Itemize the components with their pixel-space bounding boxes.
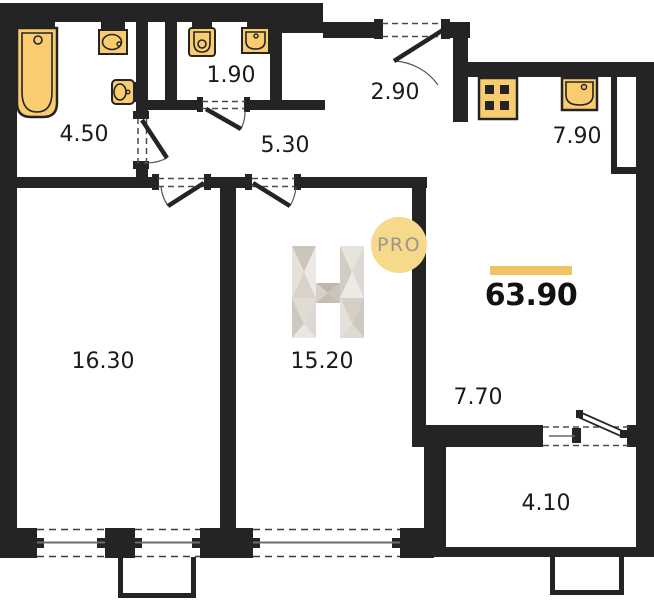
bathroom-sink-icon <box>99 22 127 54</box>
room-area-label-wc: 1.90 <box>207 65 256 87</box>
total-area-label: 63.90 <box>485 281 577 311</box>
pro-badge: PRO <box>371 217 427 273</box>
room-area-label-bedroom: 15.20 <box>291 351 354 373</box>
pro-badge-label: PRO <box>377 234 421 256</box>
room-area-label-kitchen: 7.90 <box>553 126 602 148</box>
wc-toilet-icon <box>189 19 215 56</box>
room-area-label-corridor: 7.70 <box>454 387 503 409</box>
watermark-logo <box>292 246 364 338</box>
floorplan: PRO 4.50 1.90 5.30 2.90 7.90 16.30 15.20… <box>0 0 654 600</box>
kitchen-sink-icon <box>562 78 597 110</box>
room-area-label-entry: 2.90 <box>371 82 420 104</box>
room-area-label-bathroom: 4.50 <box>60 124 109 146</box>
stove-icon <box>479 78 517 119</box>
bathroom-toilet-icon <box>112 80 143 104</box>
room-area-label-balcony: 4.10 <box>522 493 571 515</box>
bathtub-icon <box>17 28 57 117</box>
balcony-door <box>549 410 627 438</box>
room-area-label-hallway: 5.30 <box>261 135 310 157</box>
total-area-accent-bar <box>490 266 572 275</box>
room-area-label-living-room: 16.30 <box>72 351 135 373</box>
